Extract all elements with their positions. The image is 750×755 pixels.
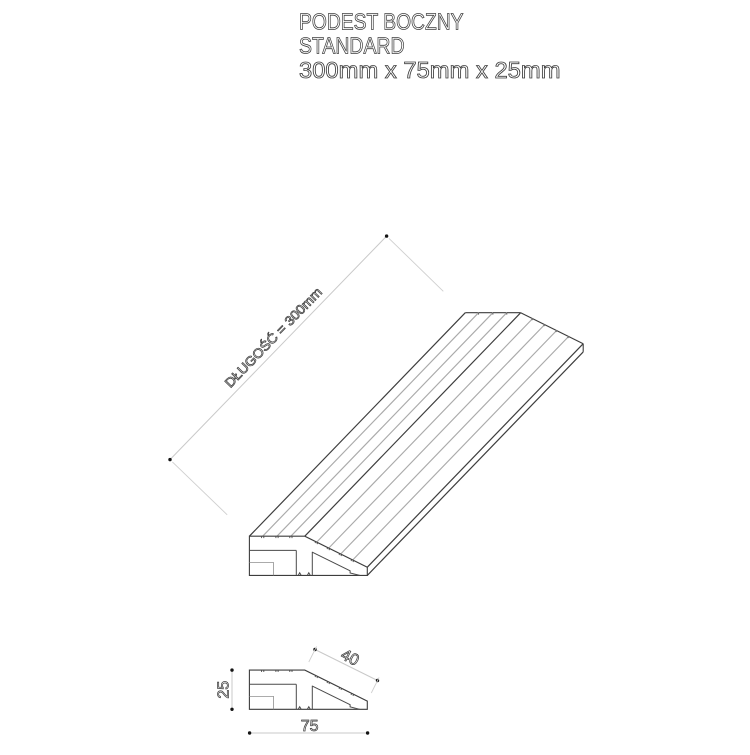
svg-text:75: 75 bbox=[301, 718, 319, 735]
svg-text:STANDARD: STANDARD bbox=[299, 33, 405, 59]
svg-text:PODEST BOCZNY: PODEST BOCZNY bbox=[299, 9, 464, 35]
svg-text:300mm x 75mm x 25mm: 300mm x 75mm x 25mm bbox=[299, 57, 561, 83]
svg-text:25: 25 bbox=[216, 681, 233, 699]
